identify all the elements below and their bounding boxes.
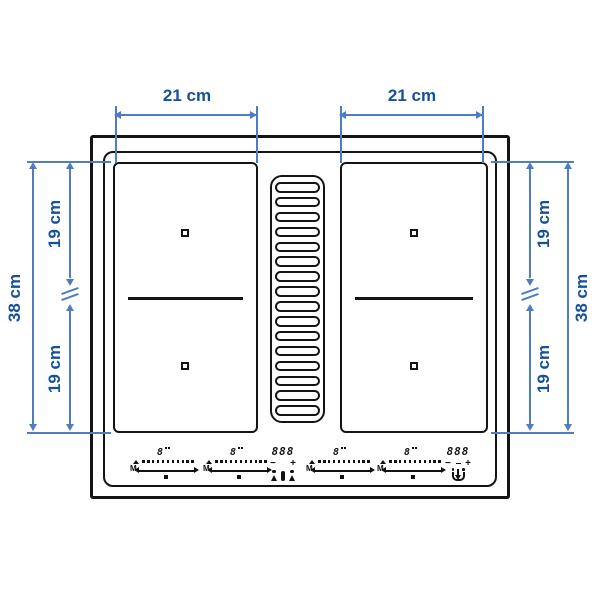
power-slider-zone-1: 8 M — [130, 447, 198, 481]
timer-display: 888 — [265, 446, 301, 457]
power-slider-zone-2: 8 M — [203, 447, 271, 481]
zone-divider-line-left — [128, 297, 243, 300]
grille-slat — [275, 405, 320, 416]
setting-dash-icon — [456, 463, 461, 465]
grille-slat — [275, 271, 320, 282]
dim-label-right-upper: 19 cm — [535, 194, 553, 254]
grille-slat — [275, 242, 320, 253]
cooktop-dimension-diagram: 21 cm 21 cm 38 cm 19 cm 19 cm 19 cm 19 c… — [0, 0, 600, 600]
grille-slat — [275, 316, 320, 327]
extractor-display-group: 888 − + — [440, 446, 476, 481]
minus-icon: − — [270, 459, 276, 468]
pan-marker — [181, 362, 189, 370]
slider-tick — [340, 475, 344, 479]
grille-slat — [275, 361, 320, 372]
extractor-fan-icon — [451, 468, 466, 481]
grille-slat — [275, 390, 320, 401]
arrow-down-icon — [526, 424, 534, 431]
dim-label-top-right: 21 cm — [352, 86, 472, 106]
arrow-up-icon — [29, 162, 37, 169]
dim-line-right-upper — [529, 166, 531, 278]
power-level-display: 8 — [157, 447, 170, 458]
zone-divider-line-right — [355, 297, 473, 300]
grille-slat — [275, 346, 320, 357]
pause-bar-icon — [281, 471, 285, 481]
arrow-down-icon — [526, 279, 534, 286]
dim-line-left-upper — [69, 166, 71, 278]
slider-track — [212, 470, 267, 472]
dim-line-right-lower — [529, 311, 531, 428]
power-segment-dots — [215, 460, 267, 463]
arrow-down-icon — [29, 424, 37, 431]
slider-tick — [411, 475, 415, 479]
dim-label-left-upper: 19 cm — [46, 194, 64, 254]
grille-slat — [275, 286, 320, 297]
dim-line-top-right — [341, 114, 482, 116]
power-level-display: 8 — [404, 447, 417, 458]
slider-track — [386, 470, 441, 472]
dim-line-left-total — [32, 166, 34, 430]
timer-person-icon — [288, 470, 296, 481]
dim-line-right-total — [567, 166, 569, 430]
power-segment-dots — [142, 460, 194, 463]
extension-line — [482, 106, 484, 163]
arrow-up-icon — [66, 304, 74, 311]
power-segment-dots — [389, 460, 441, 463]
grille-slat — [275, 256, 320, 267]
arrow-up-icon — [526, 162, 534, 169]
extension-line — [115, 106, 117, 163]
power-level-display: 8 — [230, 447, 243, 458]
dim-line-top-left — [116, 114, 257, 116]
grille-slat — [275, 376, 320, 387]
power-slider-zone-3: 8 M — [306, 447, 374, 481]
extension-line — [340, 106, 342, 163]
arrow-up-icon — [66, 162, 74, 169]
timer-person-icon — [270, 470, 278, 481]
slider-tick — [237, 475, 241, 479]
power-level-display: 8 — [333, 447, 346, 458]
grille-slat — [275, 227, 320, 238]
grille-slat — [275, 197, 320, 208]
arrow-down-icon — [66, 279, 74, 286]
extension-line — [256, 106, 258, 163]
extractor-grille — [270, 175, 325, 423]
slider-tick — [164, 475, 168, 479]
grille-slat — [275, 331, 320, 342]
arrow-down-icon — [66, 424, 74, 431]
pan-marker — [410, 362, 418, 370]
power-segment-dots — [318, 460, 370, 463]
dim-label-right-total: 38 cm — [573, 268, 591, 328]
power-slider-zone-4: 8 M — [377, 447, 445, 481]
arrow-down-icon — [564, 424, 572, 431]
dim-label-top-left: 21 cm — [127, 86, 247, 106]
extension-line — [27, 432, 111, 434]
grille-slat — [275, 182, 320, 193]
slider-track — [315, 470, 370, 472]
extractor-display: 888 — [440, 446, 476, 457]
arrow-up-icon — [564, 162, 572, 169]
arrow-up-icon — [526, 304, 534, 311]
plus-icon: + — [290, 459, 296, 468]
dim-label-left-lower: 19 cm — [46, 339, 64, 399]
plus-icon: + — [465, 459, 471, 468]
pan-marker — [410, 229, 418, 237]
dim-label-right-lower: 19 cm — [535, 339, 553, 399]
grille-slat — [275, 212, 320, 223]
timer-display-group: 888 − + — [265, 446, 301, 481]
slider-track — [139, 470, 194, 472]
minus-icon: − — [445, 459, 451, 468]
extension-line — [491, 432, 574, 434]
pan-marker — [181, 229, 189, 237]
grille-slat — [275, 301, 320, 312]
dim-line-left-lower — [69, 311, 71, 428]
dim-label-left-total: 38 cm — [6, 268, 24, 328]
